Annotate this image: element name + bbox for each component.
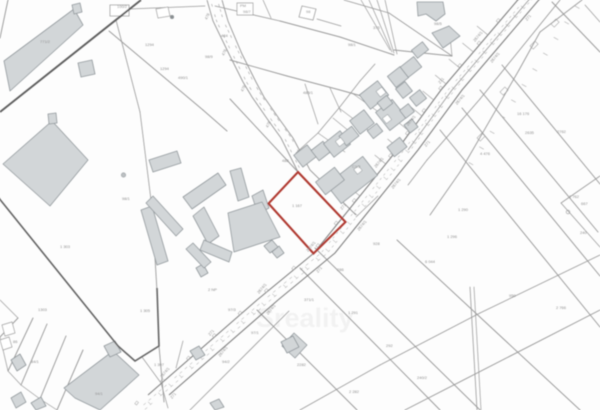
svg-text:98: 98 <box>306 9 311 14</box>
svg-text:98/9: 98/9 <box>205 54 214 59</box>
svg-text:240/2: 240/2 <box>417 375 428 380</box>
svg-text:1 303: 1 303 <box>60 244 71 249</box>
svg-text:100/2: 100/2 <box>117 4 128 9</box>
svg-text:2 762: 2 762 <box>569 194 580 199</box>
svg-text:97/1: 97/1 <box>251 330 260 335</box>
svg-text:98/1: 98/1 <box>122 196 131 201</box>
svg-text:240: 240 <box>580 230 587 235</box>
svg-text:490/1: 490/1 <box>178 75 189 80</box>
svg-text:1 290: 1 290 <box>458 207 469 212</box>
svg-text:16 176: 16 176 <box>517 111 530 116</box>
svg-text:98/5: 98/5 <box>434 21 443 26</box>
svg-text:6 044: 6 044 <box>425 259 436 264</box>
svg-text:98/7: 98/7 <box>243 9 252 14</box>
svg-text:928: 928 <box>373 241 380 246</box>
svg-text:2 282: 2 282 <box>349 389 360 394</box>
svg-text:1 296: 1 296 <box>447 234 458 239</box>
svg-text:1 305: 1 305 <box>140 308 151 313</box>
svg-text:371/1: 371/1 <box>304 297 315 302</box>
svg-text:97/3: 97/3 <box>228 307 237 312</box>
svg-text:2282: 2282 <box>297 362 307 367</box>
svg-text:1 291: 1 291 <box>348 310 359 315</box>
svg-text:1303: 1303 <box>38 307 48 312</box>
svg-text:2 NP: 2 NP <box>208 287 217 292</box>
svg-text:1294: 1294 <box>145 42 155 47</box>
svg-text:86: 86 <box>13 339 18 344</box>
svg-text:C1/2: C1/2 <box>352 164 361 169</box>
svg-text:94/2: 94/2 <box>222 359 231 364</box>
svg-text:PM: PM <box>240 3 246 8</box>
svg-text:2762: 2762 <box>557 129 567 134</box>
svg-text:94/1: 94/1 <box>95 391 104 396</box>
svg-text:2 766: 2 766 <box>556 305 567 310</box>
svg-text:375: 375 <box>373 25 380 30</box>
svg-text:484: 484 <box>221 33 228 38</box>
svg-text:485/1: 485/1 <box>303 90 314 95</box>
svg-text:950: 950 <box>509 293 516 298</box>
svg-text:2635: 2635 <box>525 130 535 135</box>
svg-text:488: 488 <box>282 158 289 163</box>
svg-text:286: 286 <box>337 267 344 272</box>
svg-text:4 476: 4 476 <box>480 151 491 156</box>
svg-text:1294: 1294 <box>160 66 170 71</box>
svg-text:84/1: 84/1 <box>31 359 40 364</box>
svg-text:1 167: 1 167 <box>292 203 303 208</box>
svg-text:1 397: 1 397 <box>154 362 165 367</box>
svg-text:98/1: 98/1 <box>348 42 357 47</box>
svg-text:667: 667 <box>581 201 588 206</box>
svg-text:771/2: 771/2 <box>40 39 51 44</box>
svg-text:292: 292 <box>386 343 393 348</box>
